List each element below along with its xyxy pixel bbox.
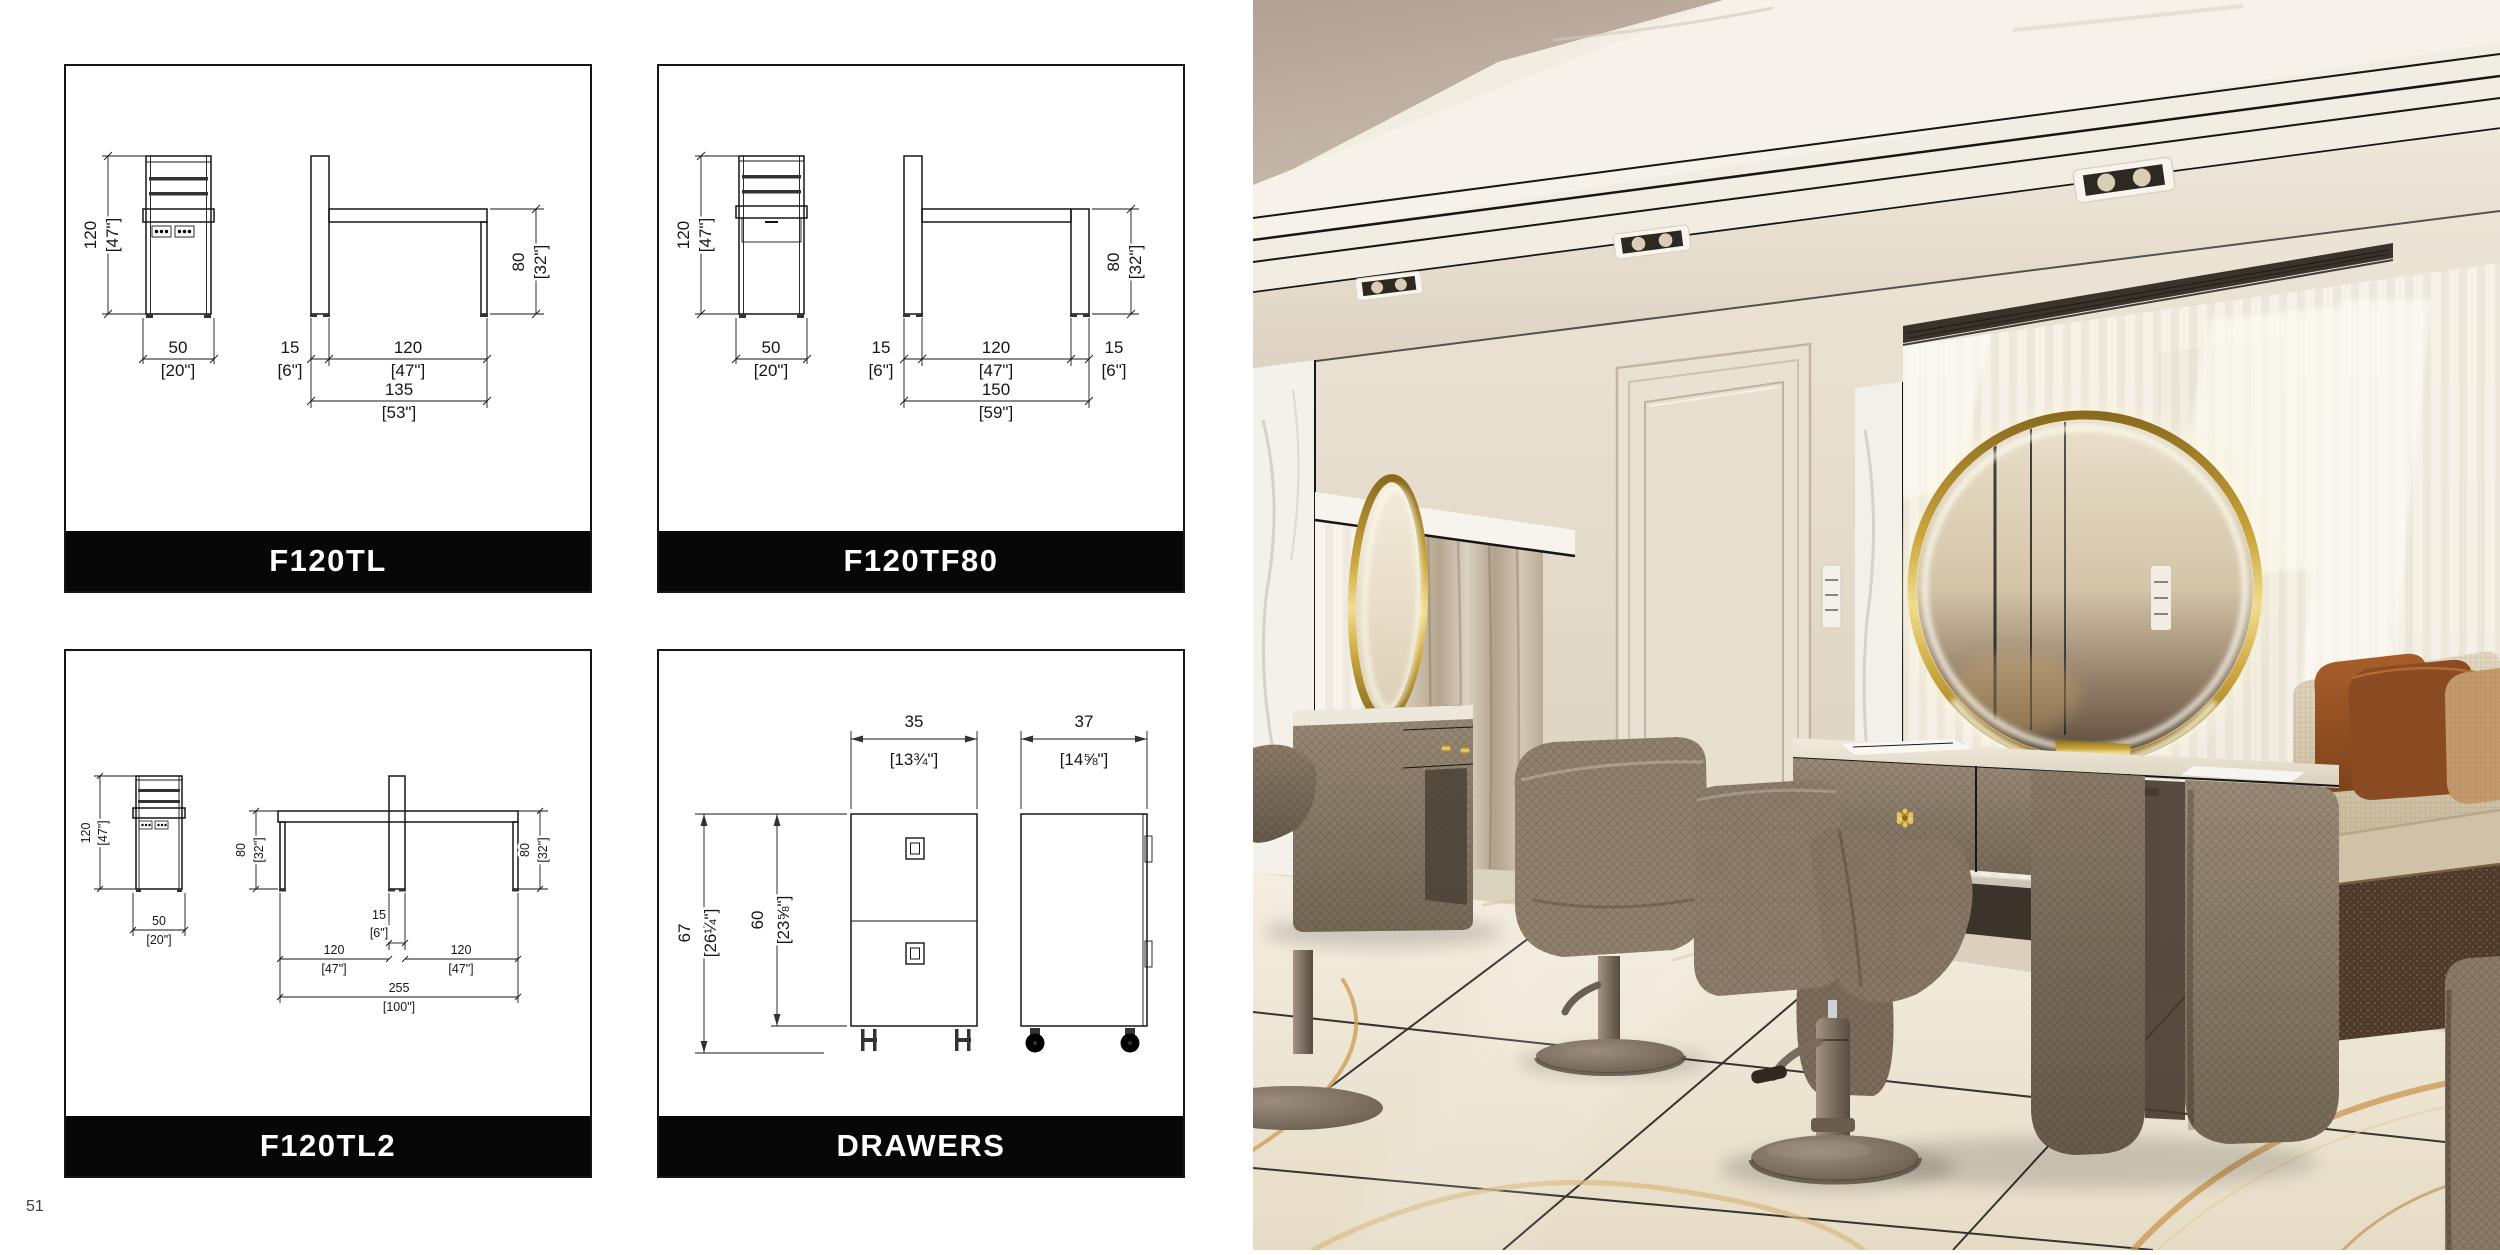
dim-total-cm: 150 bbox=[982, 380, 1010, 399]
dim-width-cm: 50 bbox=[152, 914, 166, 928]
drawer-knob-gold bbox=[1442, 744, 1451, 753]
dim-center-depth-cm: 15 bbox=[372, 908, 386, 922]
chair-pedestal-column bbox=[1598, 956, 1620, 1048]
side-view-drawing bbox=[310, 156, 488, 317]
product-code-label: F120TL bbox=[66, 531, 590, 591]
technical-drawing-drawers: 35 [13¾"] 37 [14⅝"] 67 [26¼"] bbox=[659, 651, 1183, 1116]
dimension-bottom: 15 [6"] 120 [47"] 120 [47"] 255 [100"] bbox=[277, 893, 521, 1014]
dimension-right-height: 80 [32"] bbox=[518, 808, 550, 892]
product-panel-f120tl2: 120 [47"] 50 [20"] 80 [32"] 8 bbox=[64, 649, 592, 1178]
round-mirror-illuminated bbox=[1907, 410, 2263, 766]
dim-right-span-cm: 120 bbox=[451, 943, 472, 957]
product-panel-drawers: 35 [13¾"] 37 [14⅝"] 67 [26¼"] bbox=[657, 649, 1185, 1178]
product-code: DRAWERS bbox=[837, 1128, 1006, 1164]
side-view-drawing bbox=[278, 776, 519, 892]
page-number: 51 bbox=[26, 1198, 44, 1216]
dim-worktop-height-cm: 80 bbox=[1104, 253, 1123, 272]
product-code: F120TL2 bbox=[260, 1128, 396, 1164]
dimension-height: 120 [47"] bbox=[81, 152, 146, 318]
dim-length-in: [47"] bbox=[979, 361, 1013, 380]
dimension-depths: 15 [6"] 120 [47"] 15 [6"] 150 [59"] bbox=[869, 318, 1127, 422]
product-code-label: F120TL2 bbox=[66, 1116, 590, 1176]
product-code-label: DRAWERS bbox=[659, 1116, 1183, 1176]
station-left-opening bbox=[1425, 768, 1467, 905]
light-switch-panel bbox=[1822, 565, 1841, 628]
dimension-total-height: 67 [26¼"] bbox=[675, 814, 847, 1053]
technical-drawing-f120tl: 120 [47"] 50 [20"] 80 [32"] bbox=[66, 66, 590, 531]
dimension-side-height: 80 [32"] bbox=[1092, 205, 1145, 318]
front-view-drawing bbox=[736, 156, 807, 318]
side-view-drawing bbox=[1021, 814, 1152, 1053]
product-panel-f120tf80: 120 [47"] 50 [20"] 80 [32"] bbox=[657, 64, 1185, 593]
caster-front-right bbox=[955, 1029, 971, 1051]
technical-drawing-f120tf80: 120 [47"] 50 [20"] 80 [32"] bbox=[659, 66, 1183, 531]
dim-tower-depth-cm: 15 bbox=[872, 338, 891, 357]
dim-height-in: [47"] bbox=[96, 820, 110, 845]
dim-body-height-cm: 60 bbox=[748, 911, 767, 930]
salon-interior-photo bbox=[1253, 0, 2500, 1250]
chair-column-collar bbox=[1811, 1118, 1855, 1132]
dim-body-height-in: [23⅝"] bbox=[774, 896, 793, 945]
dim-tower-depth-in: [6"] bbox=[869, 361, 894, 380]
dimension-width: 50 [20"] bbox=[130, 893, 188, 947]
dim-left-span-cm: 120 bbox=[324, 943, 345, 957]
front-view-drawing bbox=[851, 814, 977, 1051]
dimension-height: 120 [47"] bbox=[674, 152, 739, 318]
product-code: F120TL bbox=[269, 543, 387, 579]
dim-width-in: [20"] bbox=[146, 933, 171, 947]
technical-drawing-f120tl2: 120 [47"] 50 [20"] 80 [32"] 8 bbox=[66, 651, 590, 1116]
dim-left-span-in: [47"] bbox=[321, 962, 346, 976]
dim-total-height-cm: 67 bbox=[675, 924, 694, 943]
dim-total-cm: 135 bbox=[385, 380, 413, 399]
dim-total-in: [53"] bbox=[382, 403, 416, 422]
caster-side-right bbox=[1121, 1028, 1140, 1053]
dimension-height: 120 [47"] bbox=[79, 773, 136, 892]
dim-worktop-height-right-cm: 80 bbox=[518, 843, 532, 857]
dim-worktop-height-in: [32"] bbox=[1126, 245, 1145, 279]
caster-front-left bbox=[861, 1029, 877, 1051]
dim-height-in: [47"] bbox=[696, 218, 715, 252]
drawer-knob-gold bbox=[1461, 746, 1470, 755]
dimension-width: 50 [20"] bbox=[139, 318, 218, 380]
station-edge-right bbox=[2445, 956, 2500, 1250]
dim-worktop-height-in: [32"] bbox=[531, 245, 550, 279]
dim-height-in: [47"] bbox=[103, 218, 122, 252]
dimension-depths: 15 [6"] 120 [47"] 135 [53"] bbox=[278, 318, 491, 422]
chair-gas-piston bbox=[1828, 1000, 1837, 1020]
dim-total-in: [100"] bbox=[383, 1000, 415, 1014]
dim-length-cm: 120 bbox=[982, 338, 1010, 357]
dim-width-in: [20"] bbox=[754, 361, 788, 380]
dim-height-cm: 120 bbox=[81, 221, 100, 249]
dim-tower-depth-cm: 15 bbox=[281, 338, 300, 357]
product-panel-f120tl: 120 [47"] 50 [20"] 80 [32"] bbox=[64, 64, 592, 593]
dim-right-span-in: [47"] bbox=[448, 962, 473, 976]
dim-front-width-in: [13¾"] bbox=[890, 750, 939, 769]
product-code: F120TF80 bbox=[843, 543, 998, 579]
product-code-label: F120TF80 bbox=[659, 531, 1183, 591]
dimension-side-height: 80 [32"] bbox=[490, 205, 550, 318]
dim-worktop-height-right-in: [32"] bbox=[536, 837, 550, 862]
dimension-front-width: 35 [13¾"] bbox=[851, 712, 977, 809]
dim-worktop-height-cm: 80 bbox=[509, 253, 528, 272]
sofa-pillows bbox=[2314, 654, 2500, 804]
dim-width-cm: 50 bbox=[762, 338, 781, 357]
dim-side-width-cm: 37 bbox=[1075, 712, 1094, 731]
dim-worktop-height-left-cm: 80 bbox=[234, 843, 248, 857]
dim-length-cm: 120 bbox=[394, 338, 422, 357]
dim-length-in: [47"] bbox=[391, 361, 425, 380]
dim-center-depth-in: [6"] bbox=[370, 926, 388, 940]
dim-width-cm: 50 bbox=[169, 338, 188, 357]
dim-side-width-in: [14⅝"] bbox=[1060, 750, 1109, 769]
salon-interior-render bbox=[1253, 0, 2500, 1250]
dimension-left-height: 80 [32"] bbox=[234, 808, 278, 892]
side-view-drawing bbox=[903, 156, 1090, 317]
front-view-drawing bbox=[143, 156, 214, 318]
dim-worktop-height-left-in: [32"] bbox=[252, 837, 266, 862]
dim-tower-depth-in: [6"] bbox=[278, 361, 303, 380]
dim-height-cm: 120 bbox=[79, 823, 93, 844]
dimension-width: 50 [20"] bbox=[732, 318, 811, 380]
dim-total-height-in: [26¼"] bbox=[701, 909, 720, 958]
caster-side-left bbox=[1026, 1028, 1045, 1053]
dim-leg-depth-in: [6"] bbox=[1102, 361, 1127, 380]
front-view-drawing bbox=[133, 776, 185, 892]
dim-front-width-cm: 35 bbox=[905, 712, 924, 731]
dimension-body-height: 60 [23⅝"] bbox=[748, 814, 847, 1026]
dimension-side-width: 37 [14⅝"] bbox=[1021, 712, 1147, 809]
dim-height-cm: 120 bbox=[674, 221, 693, 249]
dim-total-in: [59"] bbox=[979, 403, 1013, 422]
dim-width-in: [20"] bbox=[161, 361, 195, 380]
dim-leg-depth-cm: 15 bbox=[1105, 338, 1124, 357]
chair-pedestal-column bbox=[1293, 950, 1313, 1054]
dim-total-cm: 255 bbox=[389, 981, 410, 995]
